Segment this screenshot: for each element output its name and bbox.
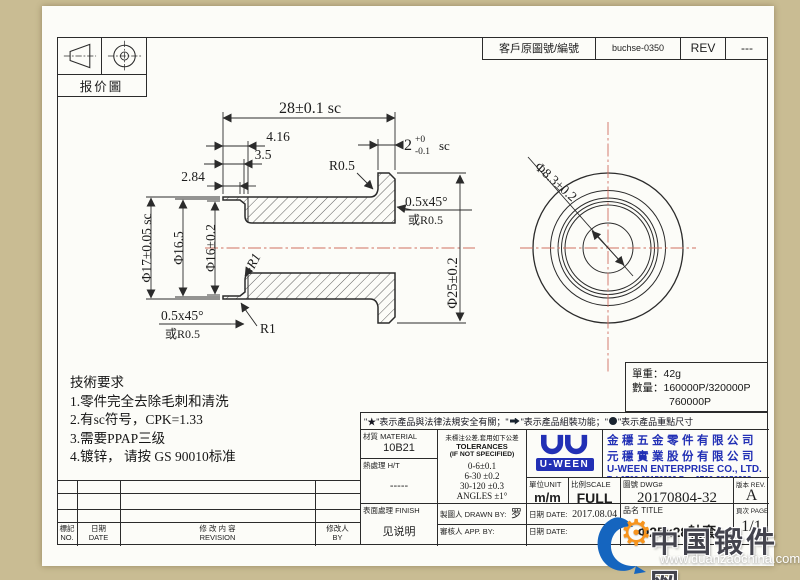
- gear-icon: ⚙: [620, 512, 652, 554]
- revision-no-en: NO.: [57, 533, 77, 542]
- revision-by-cn: 修改人: [315, 524, 360, 533]
- company-name-cn1: 金穩五金零件有限公司: [607, 432, 769, 448]
- company-name-cn2: 元穩實業股份有限公司: [607, 448, 769, 464]
- note-item: 4.镀锌， 请按 GS 90010标准: [70, 448, 370, 467]
- page-label: 頁次 PAGE: [734, 504, 769, 515]
- scale-value: FULL: [569, 490, 620, 504]
- note-item: 3.需要PPAP三级: [70, 430, 370, 449]
- drawn-by-cell: 製圖人 DRAWN BY: 罗教堂: [438, 504, 527, 525]
- finish-value: 见说明: [361, 523, 437, 539]
- tolerance-subtitle: (IF NOT SPECIFIED): [438, 451, 526, 458]
- upper-wall-section: [223, 173, 395, 223]
- dim-flange-2: 2: [404, 137, 412, 154]
- scale-cell: 比例SCALE FULL: [569, 478, 621, 504]
- assembly-arrow-icon: [510, 418, 520, 425]
- material-cell: 材質 MATERIAL 10B21: [361, 430, 438, 459]
- uween-logo-icon: [535, 433, 595, 457]
- logo-cell: U-WEEN: [527, 430, 603, 478]
- heat-treatment-value: -----: [361, 480, 437, 492]
- unit-weight: 單重：42g: [632, 367, 761, 381]
- finish-cell: 表面處理 FINISH 见说明: [361, 504, 438, 546]
- tolerance-range-1: 0-6±0.1: [438, 461, 526, 471]
- tolerance-angles: ANGLES ±1°: [438, 491, 526, 501]
- revision-content-en: REVISION: [120, 533, 315, 542]
- dim-flange-sc: sc: [439, 138, 450, 153]
- tolerance-range-2: 6-30 ±0.2: [438, 471, 526, 481]
- material-value: 10B21: [361, 442, 437, 454]
- dim-4-16: 4.16: [266, 129, 290, 144]
- weight-qty-box: 單重：42g 數量：160000P/320000P 760000P: [625, 362, 768, 412]
- revision-content-cn: 修 改 内 容: [120, 524, 315, 533]
- approved-by-label: 審核人 APP. BY:: [438, 525, 526, 537]
- material-label: 材質 MATERIAL: [361, 430, 437, 442]
- notes-title: 技術要求: [70, 374, 370, 393]
- quantity-line2: 760000P: [632, 395, 761, 409]
- legend-part1: "★"表示產品與法律法規安全有關；": [364, 415, 509, 428]
- dim-flange-tol-dn: -0.1: [415, 147, 430, 157]
- watermark-site-name: 中国锻件网: [650, 519, 800, 580]
- dim-dia-16: Φ16±0.2: [203, 224, 218, 272]
- unit-value: m/m: [527, 490, 568, 504]
- heat-treatment-cell: 熱處理 H/T -----: [361, 459, 438, 504]
- rev-cell: 版本 REV. A: [734, 478, 769, 504]
- circular-view: Φ8.3±0.2: [520, 122, 696, 374]
- company-name-en: U-WEEN ENTERPRISE CO., LTD.: [607, 464, 769, 475]
- dim-3-5: 3.5: [255, 147, 272, 162]
- dim-r05: R0.5: [329, 158, 355, 173]
- dim-2-84: 2.84: [181, 169, 205, 184]
- uween-logo-wordmark: U-WEEN: [536, 458, 594, 471]
- tolerance-range-3: 30-120 ±0.3: [438, 481, 526, 491]
- dim-r1-inner: R1: [243, 251, 264, 272]
- dim-r1-outer: R1: [260, 321, 276, 336]
- revision-col-date: 日期 DATE: [77, 524, 120, 542]
- legend-part3: "表示產品重點尺寸: [618, 415, 693, 428]
- scanned-drawing-page: 报价圖 客戶原圖號/編號 buchse-0350 REV ---: [0, 0, 800, 580]
- revision-col-content: 修 改 内 容 REVISION: [120, 524, 315, 542]
- tolerances-cell: 未標注公差,套用如下公差 TOLERANCES (IF NOT SPECIFIE…: [438, 430, 527, 504]
- dim-chamfer-left-alt: 或R0.5: [165, 327, 200, 341]
- quantity-line1: 數量：160000P/320000P: [632, 381, 761, 395]
- tolerance-title: TOLERANCES: [438, 442, 526, 451]
- revision-col-no: 標記 NO.: [57, 524, 77, 542]
- dim-chamfer-left: 0.5x45°: [161, 308, 204, 323]
- section-view: 28±0.1 sc 4.16 3.5 2.84 2 +0 -0.1 sc R0.…: [139, 100, 475, 341]
- dim-flange-tol-up: +0: [415, 135, 425, 145]
- drawn-date-label: 日期 DATE:: [527, 508, 568, 520]
- legend-part2: "表示產品組裝功能；": [521, 415, 608, 428]
- scale-label: 比例SCALE: [569, 478, 620, 490]
- revision-col-by: 修改人 BY: [315, 524, 360, 542]
- lower-wall-section: [223, 273, 395, 323]
- dim-dia-17: Φ17±0.05 sc: [139, 213, 154, 282]
- company-cell: 金穩五金零件有限公司 元穩實業股份有限公司 U-WEEN ENTERPRISE …: [603, 430, 769, 478]
- technical-notes: 技術要求 1.零件完全去除毛刺和清洗 2.有sc符号，CPK=1.33 3.需要…: [70, 374, 370, 467]
- dim-chamfer-right-alt: 或R0.5: [408, 213, 443, 227]
- approved-by-cell: 審核人 APP. BY:: [438, 525, 527, 546]
- watermark-site-url: www.duanzaochina.com: [660, 551, 800, 566]
- tolerance-note-cn: 未標注公差,套用如下公差: [438, 432, 526, 442]
- revision-no-cn: 標記: [57, 524, 77, 533]
- heat-treatment-label: 熱處理 H/T: [361, 459, 437, 471]
- key-dimension-icon: [609, 417, 617, 425]
- unit-label: 單位UNIT: [527, 478, 568, 490]
- note-item: 2.有sc符号，CPK=1.33: [70, 411, 370, 430]
- finish-label: 表面處理 FINISH: [361, 504, 437, 516]
- dim-dia-25: Φ25±0.2: [445, 257, 461, 308]
- revision-date-cn: 日期: [77, 524, 120, 533]
- revision-by-en: BY: [315, 533, 360, 542]
- revision-date-en: DATE: [77, 533, 120, 542]
- note-item: 1.零件完全去除毛刺和清洗: [70, 393, 370, 412]
- symbol-legend-row: "★"表示產品與法律法規安全有關；" "表示產品組裝功能；" "表示產品重點尺寸: [361, 413, 769, 430]
- dim-length-28: 28±0.1 sc: [279, 100, 341, 117]
- rev-cell-value: A: [734, 489, 769, 503]
- dim-chamfer-right: 0.5x45°: [405, 194, 448, 209]
- dwg-number-value: 20170804-32: [621, 490, 733, 504]
- drawn-by-label: 製圖人 DRAWN BY:: [438, 508, 506, 520]
- dwg-number-cell: 圖號 DWG# 20170804-32: [621, 478, 734, 504]
- unit-cell: 單位UNIT m/m: [527, 478, 569, 504]
- dim-dia-16-5: Φ16.5: [171, 231, 186, 265]
- revision-table: 標記 NO. 日期 DATE 修 改 内 容 REVISION 修改人 BY: [57, 480, 360, 545]
- dwg-number-label: 圖號 DWG#: [621, 478, 733, 490]
